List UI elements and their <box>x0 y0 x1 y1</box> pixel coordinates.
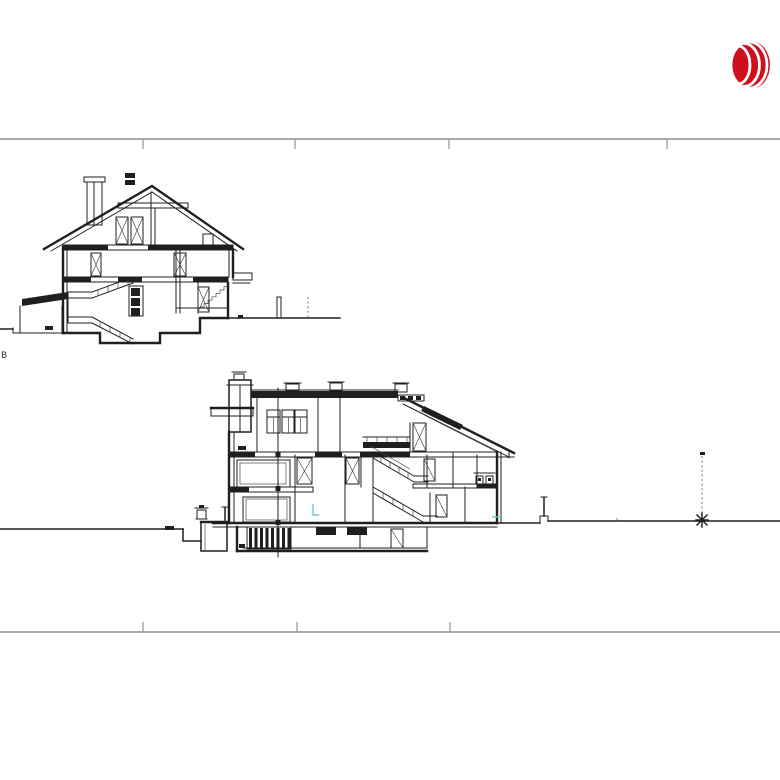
survey-marker <box>696 452 708 527</box>
entry-porch <box>195 505 228 551</box>
section-marker-label: B <box>1 351 7 361</box>
stair-tower <box>227 372 253 432</box>
floor-slab-upper <box>229 452 497 457</box>
electrical-panel <box>129 286 143 316</box>
drawing-sheet: B <box>0 0 780 780</box>
grade-line-right-lower <box>497 497 780 523</box>
sloped-roof <box>403 398 514 458</box>
entry-canopy <box>211 408 253 416</box>
attic-doors <box>116 217 213 245</box>
balcony <box>233 273 252 283</box>
right-basement-stairs <box>200 287 228 307</box>
ground-floor-slab <box>213 523 497 527</box>
chimney <box>84 177 105 225</box>
snap-marks <box>313 504 501 517</box>
jll-logo-icon <box>726 41 770 89</box>
floor-slabs <box>63 245 233 282</box>
upper-floor-windows <box>267 410 307 433</box>
exterior-walls <box>63 247 233 343</box>
building-section-lower <box>0 372 780 557</box>
attic-door-right <box>413 423 426 451</box>
mid-floor-doors <box>297 458 435 484</box>
garage-door <box>247 527 291 549</box>
roof-vent-icon <box>125 173 135 185</box>
sheet-fold-line-top <box>0 139 780 149</box>
floor-slab-mid <box>229 484 497 492</box>
elevation-drawing-canvas: B <box>0 0 780 780</box>
sheet-fold-line-bottom <box>0 622 780 632</box>
building-section-upper: B <box>0 173 340 361</box>
left-annex <box>13 292 68 333</box>
grade-line-left-lower <box>0 526 201 541</box>
grade-line-right <box>228 297 340 318</box>
